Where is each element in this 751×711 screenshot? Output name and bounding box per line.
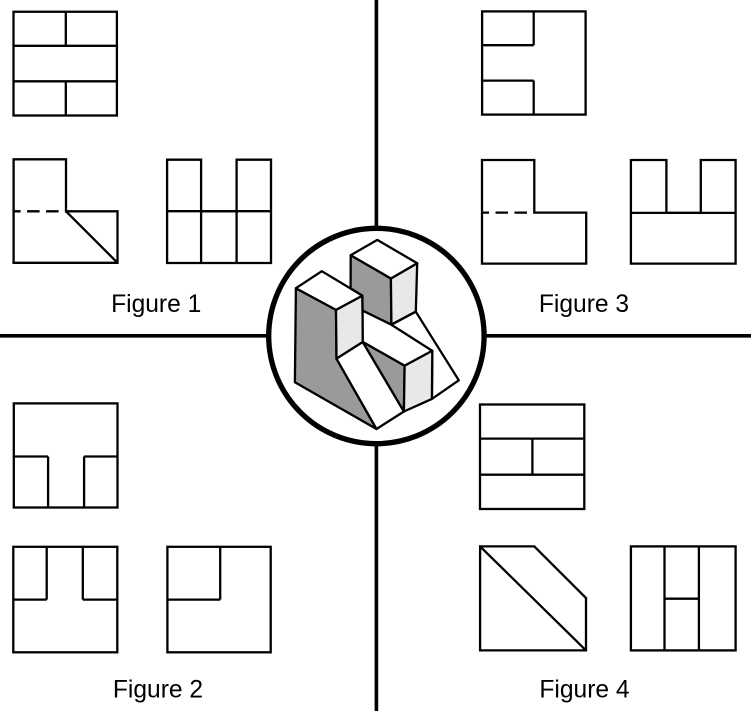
svg-text:Figure 4: Figure 4 (539, 677, 629, 704)
svg-text:Figure 2: Figure 2 (113, 677, 203, 704)
svg-text:Figure 3: Figure 3 (539, 291, 629, 318)
svg-text:Figure 1: Figure 1 (111, 291, 201, 318)
